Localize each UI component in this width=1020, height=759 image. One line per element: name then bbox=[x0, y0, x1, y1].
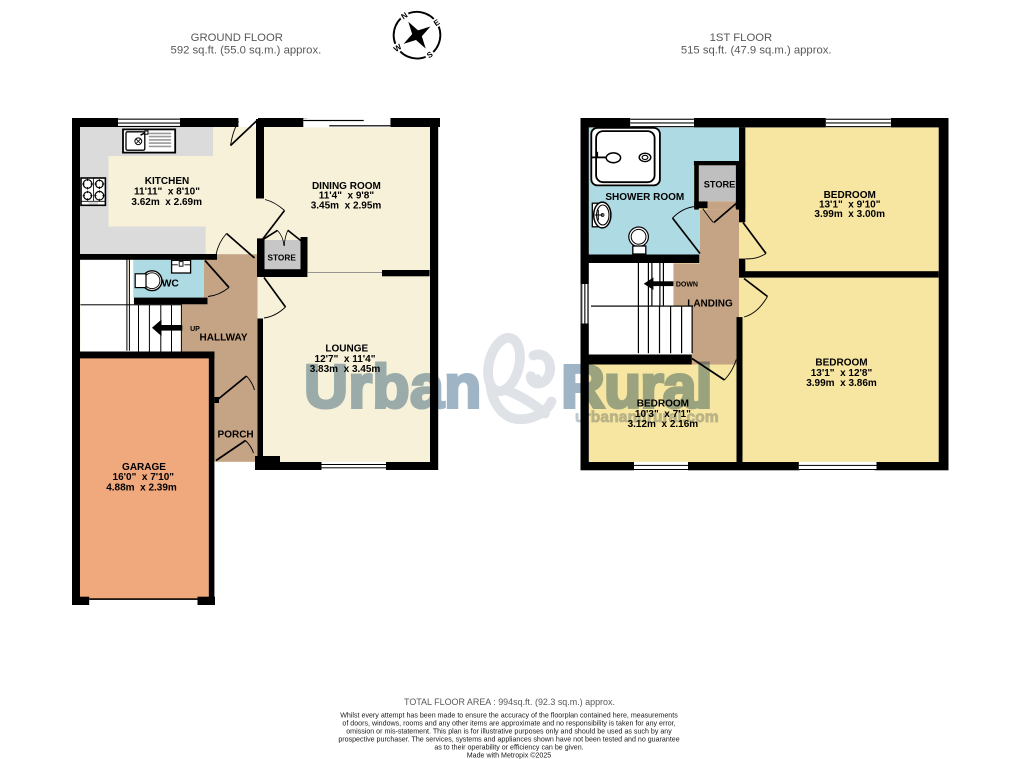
svg-text:WC: WC bbox=[162, 278, 180, 289]
svg-text:3.12m x 2.16m: 3.12m x 2.16m bbox=[628, 419, 699, 430]
svg-text:as to their operability or eff: as to their operability or efficiency ca… bbox=[434, 744, 583, 752]
svg-text:prospective purchaser. The ser: prospective purchaser. The services, sys… bbox=[338, 736, 679, 744]
svg-text:omission or mis-statement. Thi: omission or mis-statement. This plan is … bbox=[346, 728, 672, 736]
svg-text:TOTAL FLOOR AREA : 994sq.ft. (: TOTAL FLOOR AREA : 994sq.ft. (92.3 sq.m.… bbox=[404, 697, 615, 707]
svg-text:4.88m x 2.39m: 4.88m x 2.39m bbox=[106, 482, 177, 493]
svg-text:3.45m x 2.95m: 3.45m x 2.95m bbox=[311, 200, 382, 211]
svg-text:GARAGE: GARAGE bbox=[122, 462, 166, 473]
svg-text:11'11" x 8'10": 11'11" x 8'10" bbox=[134, 186, 200, 197]
svg-text:515 sq.ft. (47.9 sq.m.) approx: 515 sq.ft. (47.9 sq.m.) approx. bbox=[681, 45, 832, 57]
svg-text:STORE: STORE bbox=[704, 179, 735, 189]
svg-text:SHOWER ROOM: SHOWER ROOM bbox=[605, 192, 684, 203]
svg-text:3.99m x 3.86m: 3.99m x 3.86m bbox=[806, 378, 877, 389]
svg-text:1ST FLOOR: 1ST FLOOR bbox=[710, 32, 773, 44]
svg-text:GROUND FLOOR: GROUND FLOOR bbox=[191, 32, 283, 44]
svg-text:592 sq.ft. (55.0 sq.m.) approx: 592 sq.ft. (55.0 sq.m.) approx. bbox=[171, 45, 322, 57]
svg-text:of doors, windows, rooms and a: of doors, windows, rooms and any other i… bbox=[342, 720, 675, 728]
svg-text:DOWN: DOWN bbox=[676, 282, 698, 289]
svg-text:3.99m x 3.00m: 3.99m x 3.00m bbox=[814, 209, 885, 220]
svg-text:PORCH: PORCH bbox=[218, 430, 254, 441]
svg-text:Whilst every attempt has been: Whilst every attempt has been made to en… bbox=[340, 712, 678, 720]
svg-text:UP: UP bbox=[190, 326, 200, 333]
svg-text:LANDING: LANDING bbox=[687, 298, 733, 309]
svg-text:HALLWAY: HALLWAY bbox=[200, 333, 248, 344]
svg-text:Made with Metropix ©2025: Made with Metropix ©2025 bbox=[467, 751, 552, 759]
svg-text:3.83m x 3.45m: 3.83m x 3.45m bbox=[310, 364, 381, 375]
svg-text:STORE: STORE bbox=[267, 253, 296, 263]
svg-text:LOUNGE: LOUNGE bbox=[325, 343, 368, 354]
svg-text:3.62m x 2.69m: 3.62m x 2.69m bbox=[131, 197, 202, 208]
